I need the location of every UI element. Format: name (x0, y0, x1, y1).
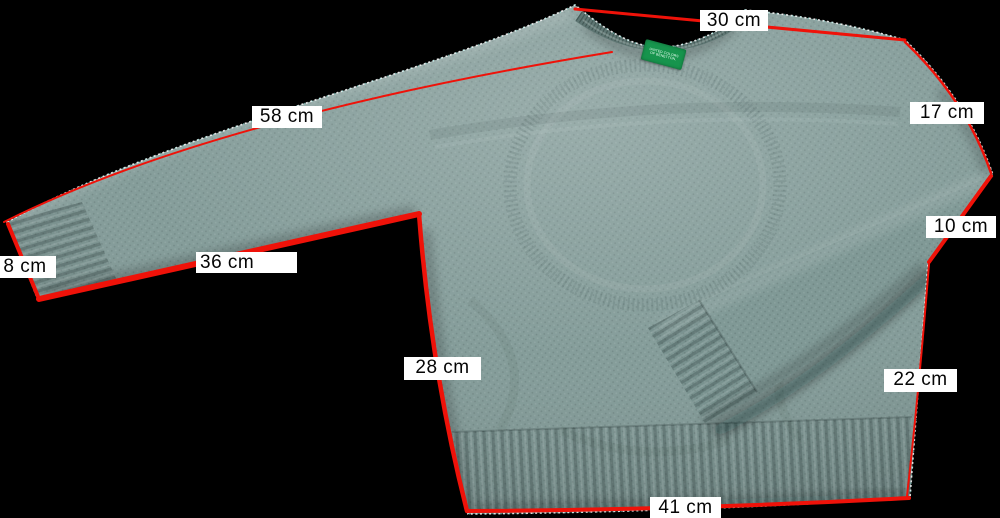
annotated-product-photo: UNITED COLORS OF BENETTON. 30 cm 58 cm 1… (0, 0, 1000, 518)
label-upper-sleeve: 17 cm (910, 102, 984, 124)
label-underarm-sleeve: 36 cm (196, 252, 297, 273)
label-shoulder-width: 30 cm (700, 10, 768, 31)
label-right-cuff: 10 cm (926, 216, 996, 238)
label-body-side: 28 cm (404, 357, 481, 380)
label-left-cuff: 8 cm (0, 256, 56, 278)
label-sleeve-length: 58 cm (252, 106, 322, 128)
label-hem-width: 41 cm (650, 497, 721, 518)
label-body-right: 22 cm (884, 369, 957, 392)
sweater-photo (0, 0, 1000, 518)
